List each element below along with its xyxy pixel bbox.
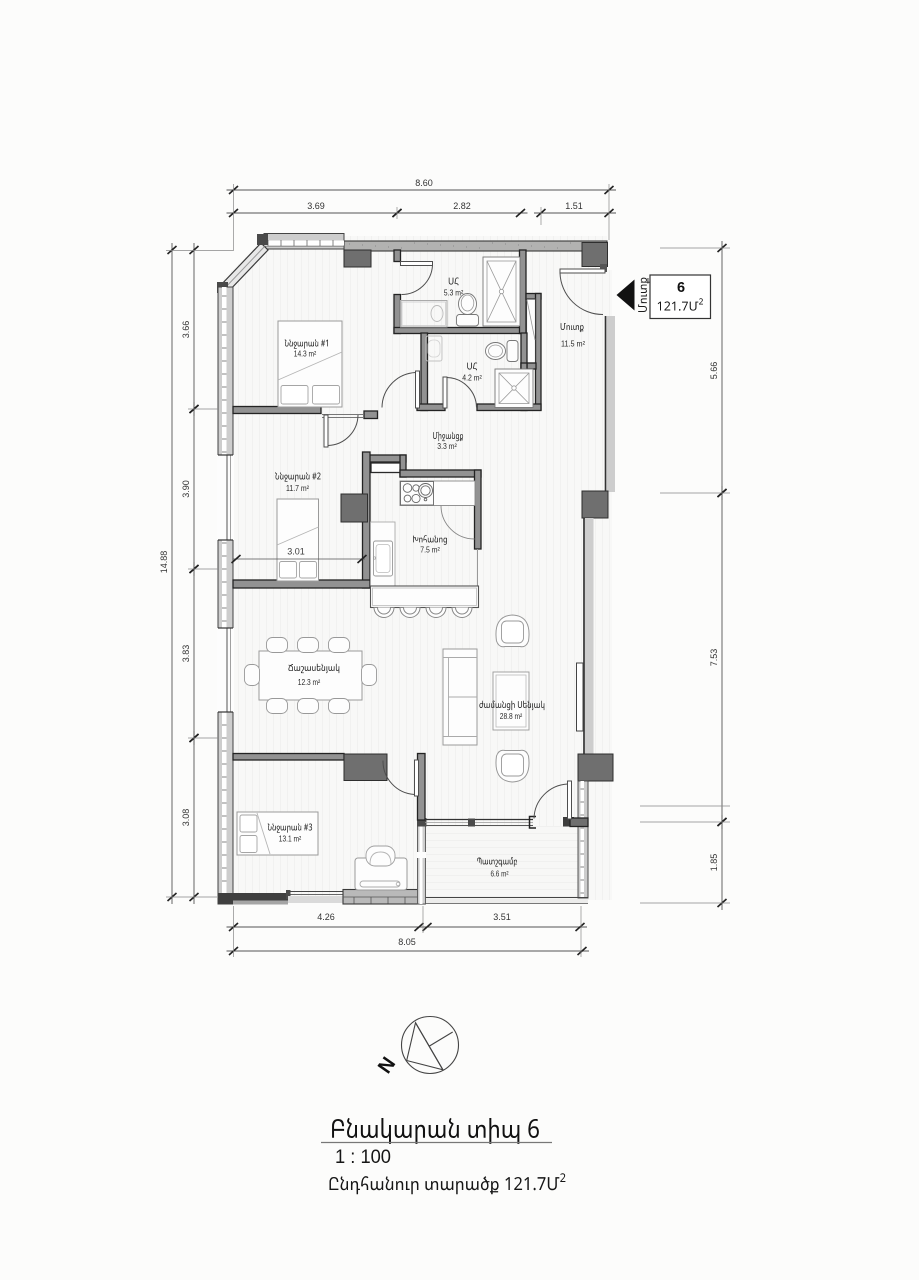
svg-text:11.7 m²: 11.7 m² bbox=[286, 484, 309, 493]
svg-text:3.01: 3.01 bbox=[287, 547, 305, 557]
svg-text:28.8 m²: 28.8 m² bbox=[500, 712, 523, 721]
svg-text:4.26: 4.26 bbox=[317, 912, 335, 922]
svg-text:14.3 m²: 14.3 m² bbox=[294, 350, 317, 359]
svg-text:8.60: 8.60 bbox=[415, 178, 433, 188]
svg-text:13.1 m²: 13.1 m² bbox=[279, 835, 302, 844]
svg-text:3.83: 3.83 bbox=[181, 645, 191, 663]
svg-text:3.51: 3.51 bbox=[493, 912, 511, 922]
svg-text:11.5 m²: 11.5 m² bbox=[561, 340, 585, 349]
svg-text:7.53: 7.53 bbox=[709, 649, 719, 667]
svg-text:12.3 m²: 12.3 m² bbox=[298, 678, 321, 687]
svg-text:3.08: 3.08 bbox=[181, 809, 191, 827]
svg-text:1.85: 1.85 bbox=[709, 854, 719, 872]
svg-text:3.69: 3.69 bbox=[307, 201, 325, 211]
svg-text:1.51: 1.51 bbox=[565, 201, 583, 211]
svg-text:3.3 m²: 3.3 m² bbox=[437, 442, 457, 451]
svg-text:1 : 100: 1 : 100 bbox=[335, 1147, 391, 1168]
svg-text:6.6 m²: 6.6 m² bbox=[491, 870, 509, 879]
svg-text:3.90: 3.90 bbox=[181, 480, 191, 498]
svg-text:7.5 m²: 7.5 m² bbox=[420, 546, 440, 555]
svg-text:5.66: 5.66 bbox=[709, 362, 719, 380]
svg-text:6: 6 bbox=[677, 280, 685, 296]
svg-text:2.82: 2.82 bbox=[453, 201, 471, 211]
svg-text:14.88: 14.88 bbox=[159, 551, 169, 574]
svg-text:3.66: 3.66 bbox=[181, 321, 191, 339]
svg-text:5.3 m²: 5.3 m² bbox=[444, 289, 464, 298]
svg-text:8.05: 8.05 bbox=[398, 937, 416, 947]
svg-text:4.2 m²: 4.2 m² bbox=[462, 374, 482, 383]
